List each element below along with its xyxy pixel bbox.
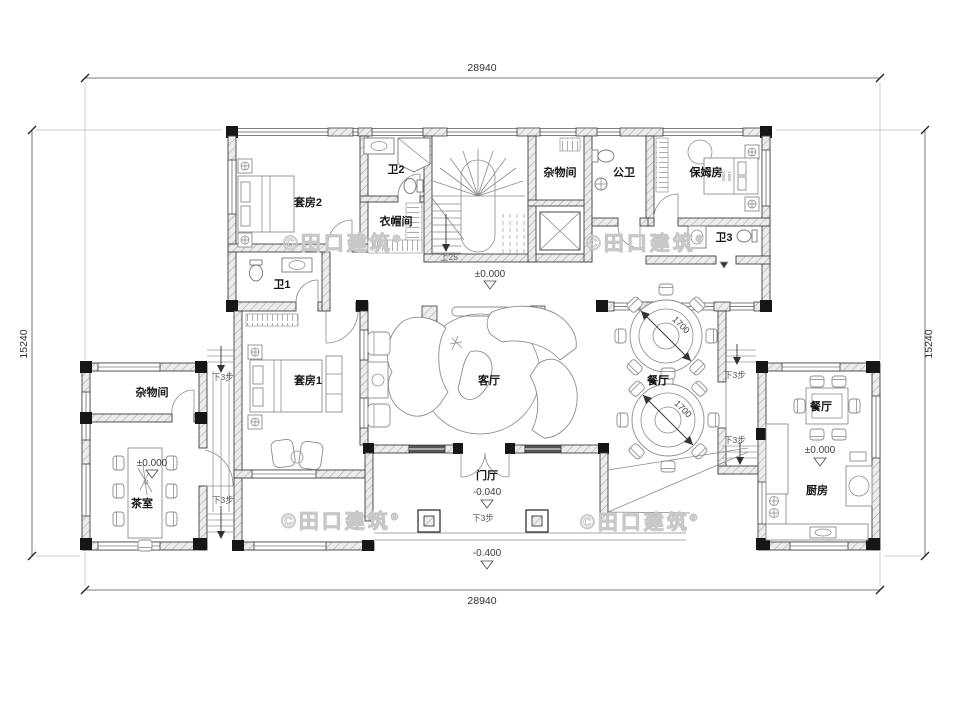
suite1-furniture xyxy=(246,314,342,470)
dim-top: 28940 xyxy=(467,62,496,74)
dim-bottom: 28940 xyxy=(467,595,496,607)
window-leftwing-north xyxy=(98,363,160,371)
room-label-living: 客厅 xyxy=(477,373,500,387)
watermark: ©田口建筑® xyxy=(580,510,700,534)
window-nanny-east xyxy=(762,150,770,206)
room-label-bath1: 卫1 xyxy=(273,278,290,291)
walls-main-block xyxy=(226,126,772,312)
room-label-nanny: 保姆房 xyxy=(689,165,723,179)
watermark: ©田口建筑® xyxy=(586,231,706,255)
living-decor xyxy=(450,336,462,350)
elevation-kitchen: ±0.000 xyxy=(805,445,836,466)
window-suite1-east-2 xyxy=(360,398,368,428)
svg-text:±0.000: ±0.000 xyxy=(475,269,506,280)
room-label-suite2: 套房2 xyxy=(294,195,322,209)
room-label-dining: 餐厅 xyxy=(646,373,669,387)
steps-left-top: 下3步 xyxy=(212,372,234,382)
window-rightwing-north xyxy=(782,363,840,371)
svg-text:-0.040: -0.040 xyxy=(473,487,502,498)
window-rightwing-east xyxy=(872,396,880,458)
room-label-tea-room: 茶室 xyxy=(130,496,153,510)
bath1-fixtures xyxy=(250,258,313,281)
room-label-kitchen: 厨房 xyxy=(806,483,828,497)
bed-dim-width: 1800 xyxy=(727,171,732,182)
elevation-ground: -0.400 xyxy=(473,548,502,569)
room-label-bath2: 卫2 xyxy=(387,163,404,176)
room-label-storage-left: 杂物间 xyxy=(136,385,169,399)
floor-plan-drawing: 28940 28940 15240 15240 xyxy=(0,0,961,722)
porch-column-right xyxy=(526,510,548,532)
kitchen-counters xyxy=(766,424,872,540)
elevation-hall: ±0.000 xyxy=(475,269,506,289)
floor-plan-sheet: 28940 28940 15240 15240 xyxy=(0,0,961,722)
steps-left-bottom: 下3步 xyxy=(212,495,234,505)
window-suite1-south xyxy=(252,470,316,478)
window-suite2-west xyxy=(228,160,236,214)
svg-text:±0.000: ±0.000 xyxy=(137,458,168,469)
living-furniture xyxy=(368,306,577,438)
room-label-dining-right: 餐厅 xyxy=(809,399,832,413)
stair-up-note: 上25 xyxy=(440,252,458,262)
window-leftwing-west-2 xyxy=(82,464,90,516)
room-label-storage-top: 杂物间 xyxy=(544,165,577,179)
elevator xyxy=(540,212,580,250)
room-label-cloakroom: 衣帽间 xyxy=(380,214,413,228)
svg-text:±0.000: ±0.000 xyxy=(805,445,836,456)
elevation-entrance: -0.040 下3步 xyxy=(472,487,501,523)
dim-left: 15240 xyxy=(18,329,30,358)
watermark: ©田口建筑® xyxy=(281,509,401,533)
room-label-public-bath: 公卫 xyxy=(613,166,635,179)
room-label-suite1: 套房1 xyxy=(294,373,322,387)
dim-right: 15240 xyxy=(923,329,935,358)
watermark: ©田口建筑® xyxy=(283,231,403,255)
steps-right-top: 下3步 xyxy=(724,370,746,380)
steps-right-mid: 下3步 xyxy=(724,435,746,445)
steps-porch: 下3步 xyxy=(472,513,494,523)
window-rightwing-west xyxy=(758,482,766,524)
room-label-bath3: 卫3 xyxy=(715,231,732,244)
window-suite1-east-1 xyxy=(360,330,368,360)
svg-text:-0.400: -0.400 xyxy=(473,548,502,559)
public-bath-fixtures xyxy=(592,150,614,190)
room-label-entrance: 门厅 xyxy=(476,468,498,482)
porch-column-left xyxy=(418,510,440,532)
staircase: 上25 xyxy=(431,149,525,262)
window-terrace-south xyxy=(254,542,326,550)
window-rightwing-south xyxy=(790,542,848,550)
storage-shelf xyxy=(560,138,580,151)
